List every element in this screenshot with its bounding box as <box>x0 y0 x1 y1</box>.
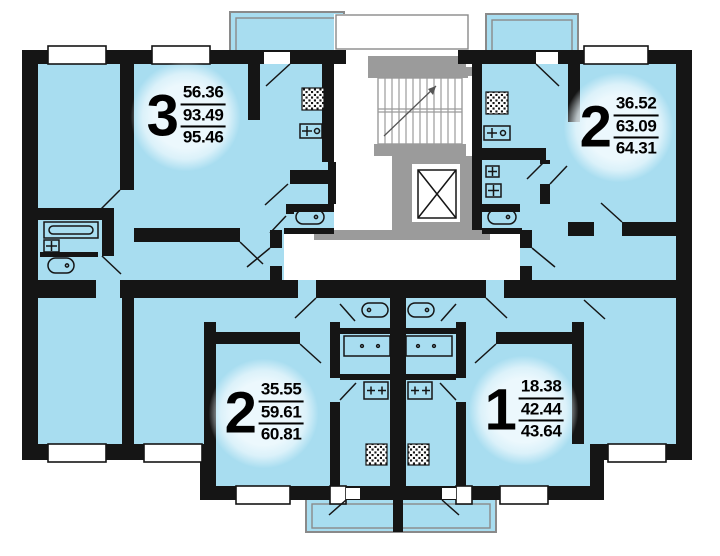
balcony-top-right <box>486 14 578 52</box>
area-usable: 93.49 <box>181 106 226 128</box>
area-total: 60.81 <box>259 426 304 446</box>
apartment-label-2-room-upper: 2 36.52 63.09 64.31 <box>580 94 659 159</box>
area-usable: 42.44 <box>519 400 564 422</box>
balcony-top-left <box>230 12 344 52</box>
area-living: 56.36 <box>181 83 226 105</box>
area-living: 36.52 <box>614 94 659 116</box>
elevator-icon <box>392 156 472 230</box>
window <box>584 46 648 64</box>
window <box>144 444 202 462</box>
room-count: 2 <box>580 102 610 151</box>
balcony-door-opening <box>346 488 360 499</box>
window <box>608 444 666 462</box>
balcony-door-opening <box>442 488 456 499</box>
room-count: 2 <box>225 388 255 437</box>
vent-shaft-icon <box>366 444 387 465</box>
window <box>48 46 106 64</box>
balcony-door-opening <box>264 52 290 64</box>
vent-shaft-icon <box>486 92 508 114</box>
staircase-icon <box>378 78 462 144</box>
floor-plan: 3 56.36 93.49 95.46 2 36.52 63.09 64.31 … <box>0 0 720 556</box>
window <box>500 486 548 504</box>
apartment-label-2-room-lower: 2 35.55 59.61 60.81 <box>225 380 304 445</box>
area-total: 64.31 <box>614 140 659 160</box>
area-total: 43.64 <box>519 423 564 443</box>
vent-shaft-icon <box>408 444 429 465</box>
vent-shaft-icon <box>302 88 324 110</box>
area-living: 18.38 <box>519 377 564 399</box>
apartment-label-3-room: 3 56.36 93.49 95.46 <box>147 83 226 148</box>
room-count: 3 <box>147 91 177 140</box>
window <box>48 444 106 462</box>
window <box>236 486 290 504</box>
area-total: 95.46 <box>181 129 226 149</box>
area-usable: 63.09 <box>614 117 659 139</box>
area-living: 35.55 <box>259 380 304 402</box>
balcony-door-opening <box>536 52 558 64</box>
room-count: 1 <box>485 385 515 434</box>
apartment-label-1-room: 1 18.38 42.44 43.64 <box>485 377 564 442</box>
window <box>456 486 472 504</box>
area-usable: 59.61 <box>259 403 304 425</box>
